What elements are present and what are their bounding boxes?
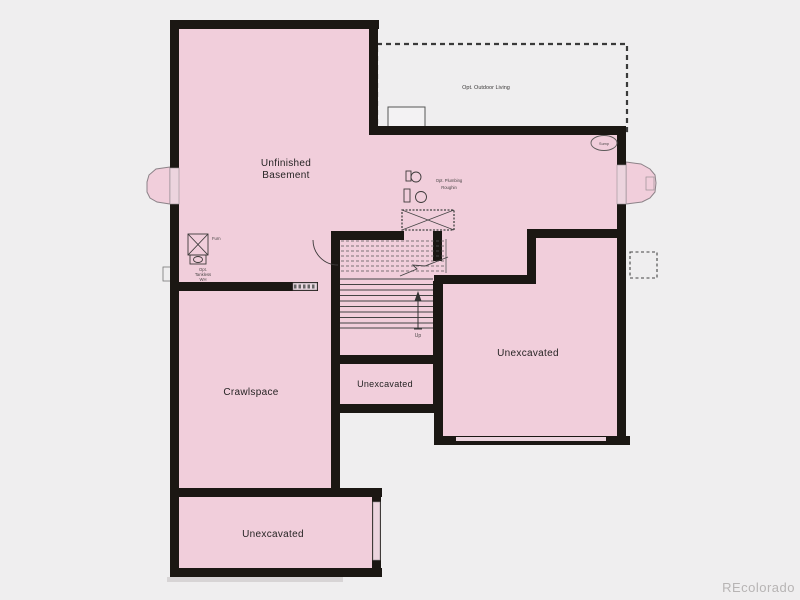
sump-label: Sump [599,142,609,146]
right-window-well [626,162,656,204]
landing-rectangle [388,107,425,127]
tankless-label-3: WH [200,277,207,282]
dashed-utility-box [630,252,657,278]
wall-rightroom-top [533,229,626,238]
unexcavated-middle-label: Unexcavated [357,379,413,389]
floor-basement-band [178,135,617,232]
stairs-up-label: Up [415,333,422,339]
wall-top [170,20,379,29]
wall-bottomroom-top [170,488,382,497]
bottom-wall-shadow [167,577,343,582]
crawlspace-access-hatch [293,283,317,290]
wall-stair-right-lower [433,281,442,413]
wall-rightroom-right [617,229,626,445]
wall-midroom-bottom [331,404,441,413]
floorplan-page: Up Furn Opt. Tankless WH Opt. Plumbing R… [0,0,800,600]
furnace-label: Furn [212,236,221,241]
wall-upperblock-right [369,20,378,135]
left-wall-window [170,168,179,204]
unexcavated-right-label: Unexcavated [497,348,559,359]
wall-door-header [338,231,404,240]
basement-floorplan: Up Furn Opt. Tankless WH Opt. Plumbing R… [0,0,800,600]
right-wall-window [617,165,626,204]
outdoor-living-label: Opt. Outdoor Living [462,85,510,91]
unexcavated-bottom-label: Unexcavated [242,529,304,540]
unfinished-basement-label-2: Basement [262,170,309,181]
crawlspace-label: Crawlspace [223,387,278,398]
wall-rightroom-notch-h [434,275,536,284]
plumbing-label-1: Opt. Plumbing [436,178,463,183]
wall-midroom-top [331,355,441,364]
bottomroom-window [373,502,380,560]
wall-top-mid [369,126,626,135]
unfinished-basement-label-1: Unfinished [261,158,311,169]
floor-basement-upper [178,28,369,135]
rightroom-bottom-window [456,437,606,441]
left-window-well [147,167,170,204]
plumbing-label-2: Roughin [441,185,457,190]
wall-bottomroom-bottom [170,568,382,577]
watermark: REcolorado [722,580,795,595]
